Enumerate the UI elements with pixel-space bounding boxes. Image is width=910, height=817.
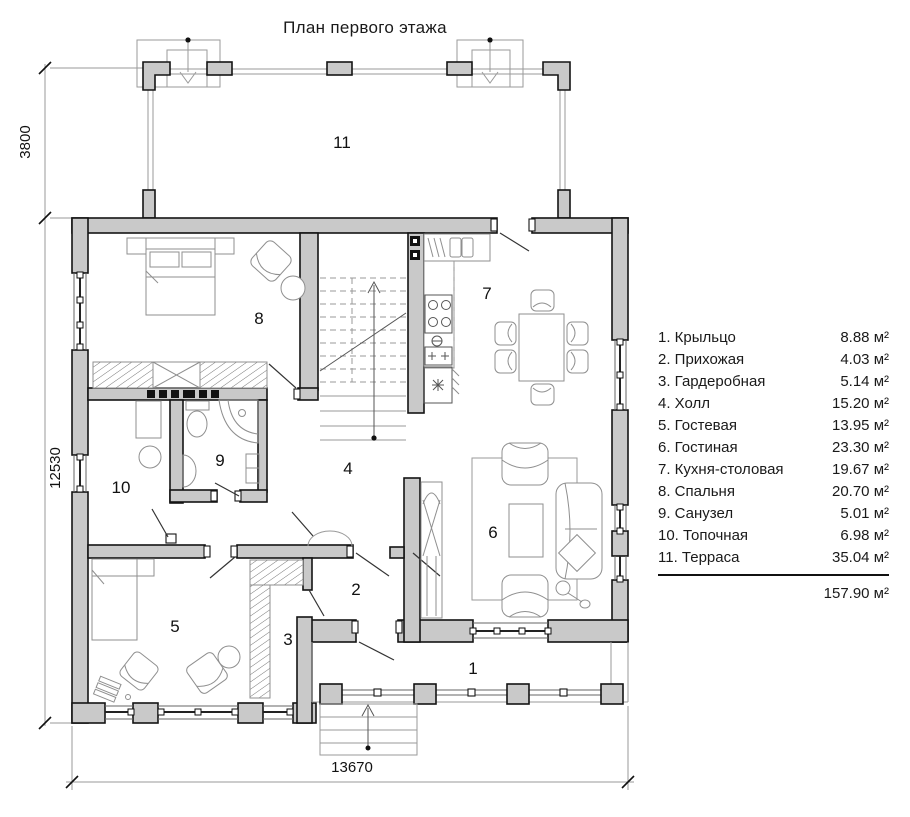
legend-room-area: 23.30 м² — [832, 437, 889, 459]
room-label-11: 11 — [333, 133, 351, 152]
room-label-4: 4 — [343, 459, 352, 478]
legend-room-area: 15.20 м² — [832, 393, 889, 415]
legend-room-area: 13.95 м² — [832, 415, 889, 437]
legend-row: 2. Прихожая4.03 м² — [658, 349, 889, 371]
staircase — [320, 278, 406, 441]
legend-room-area: 8.88 м² — [840, 327, 889, 349]
room-label-1: 1 — [468, 659, 477, 678]
legend-room-area: 35.04 м² — [832, 547, 889, 569]
guest-room-furniture — [92, 559, 240, 702]
dim-terrace-depth: 3800 — [17, 125, 34, 158]
legend-room-area: 5.14 м² — [840, 371, 889, 393]
legend-row: 11. Терраса35.04 м² — [658, 547, 889, 569]
legend-row: 5. Гостевая13.95 м² — [658, 415, 889, 437]
bathroom-fixtures — [183, 400, 259, 487]
legend-row: 4. Холл15.20 м² — [658, 393, 889, 415]
room-label-7: 7 — [482, 284, 491, 303]
kitchen-furniture — [424, 234, 588, 405]
terrace — [137, 37, 570, 218]
legend-room-name: 4. Холл — [658, 393, 710, 415]
room-label-10: 10 — [112, 478, 131, 497]
room-label-3: 3 — [283, 630, 292, 649]
legend-row: 9. Санузел5.01 м² — [658, 503, 889, 525]
legend-room-area: 6.98 м² — [840, 525, 889, 547]
dim-house-width: 13670 — [331, 759, 373, 776]
legend-row: 6. Гостиная23.30 м² — [658, 437, 889, 459]
legend-room-name: 10. Топочная — [658, 525, 748, 547]
boiler-room-furniture — [136, 401, 161, 468]
legend-total-area: 157.90 м² — [658, 576, 889, 605]
legend-room-name: 1. Крыльцо — [658, 327, 736, 349]
living-room-furniture — [421, 443, 602, 618]
legend-room-name: 5. Гостевая — [658, 415, 737, 437]
legend-room-area: 5.01 м² — [840, 503, 889, 525]
room-label-6: 6 — [488, 523, 497, 542]
room-label-9: 9 — [215, 451, 224, 470]
legend-room-name: 9. Санузел — [658, 503, 733, 525]
legend-row: 1. Крыльцо8.88 м² — [658, 327, 889, 349]
legend-room-area: 4.03 м² — [840, 349, 889, 371]
legend-room-name: 11. Терраса — [658, 547, 739, 569]
room-label-8: 8 — [254, 309, 263, 328]
legend-room-name: 7. Кухня-столовая — [658, 459, 784, 481]
room-label-5: 5 — [170, 617, 179, 636]
legend-row: 8. Спальня20.70 м² — [658, 481, 889, 503]
legend-room-area: 19.67 м² — [832, 459, 889, 481]
legend-row: 10. Топочная6.98 м² — [658, 525, 889, 547]
floor-plan-page: План первого этажа 3800 12530 13670 — [0, 0, 910, 817]
dim-house-side: 12530 — [47, 447, 64, 489]
legend-row: 3. Гардеробная5.14 м² — [658, 371, 889, 393]
room-label-2: 2 — [351, 580, 360, 599]
legend-room-name: 3. Гардеробная — [658, 371, 765, 393]
entrance-steps — [320, 704, 417, 755]
bedroom-furniture — [93, 238, 305, 388]
legend-room-name: 8. Спальня — [658, 481, 735, 503]
legend-room-name: 6. Гостиная — [658, 437, 738, 459]
wardrobe-room — [250, 560, 303, 698]
legend-room-name: 2. Прихожая — [658, 349, 744, 371]
room-legend: 1. Крыльцо8.88 м² 2. Прихожая4.03 м² 3. … — [658, 327, 889, 605]
legend-row: 7. Кухня-столовая19.67 м² — [658, 459, 889, 481]
legend-room-area: 20.70 м² — [832, 481, 889, 503]
